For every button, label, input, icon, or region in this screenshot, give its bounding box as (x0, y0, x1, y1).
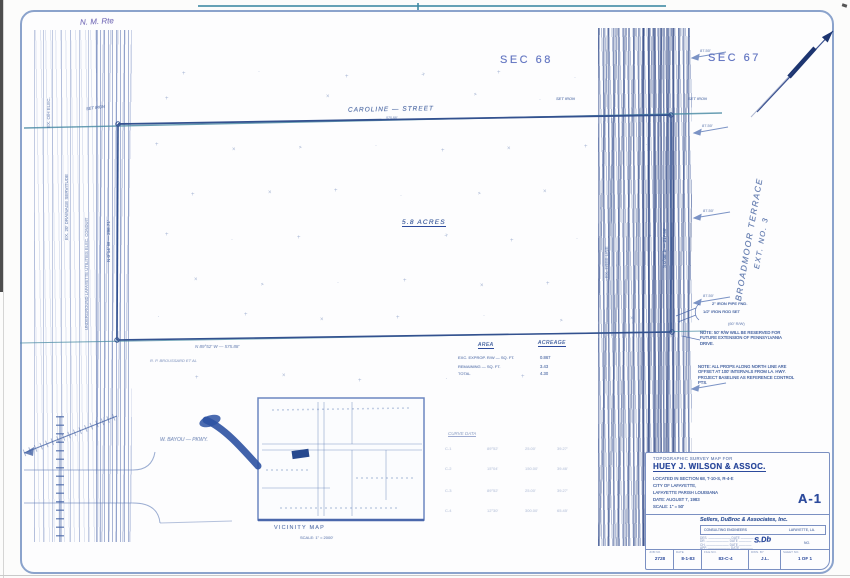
left-band-label-2: UNDERGROUND LAFAYETTE UTILITIES ELEC. CO… (84, 218, 89, 330)
curve-cell: C-4 (445, 508, 451, 513)
section-label-67: SEC 67 (708, 52, 761, 64)
title-divider (646, 514, 829, 515)
note-pennsylvania: NOTE: 50' R/W WILL BE RESERVED FOR FUTUR… (700, 330, 788, 346)
title-field-label: JOB NO. (647, 549, 673, 554)
scan-edge-gray (3, 0, 4, 578)
area-row-label: EXC. EXPROP. R/W — SQ. FT. (458, 355, 514, 360)
right-band-label: EX. TREE LINE (604, 246, 609, 278)
curve-cell: C-3 (445, 488, 451, 493)
area-row-label: REMAINING — SQ. FT. (458, 364, 500, 369)
scan-top-line (198, 5, 666, 7)
curve-cell: 25.00' (525, 446, 536, 451)
title-located: LOCATED IN SECTION 68, T-10-S, R-4-E (653, 476, 734, 481)
adjacent-owner-label: R. P. BROUSSARD ET AL (150, 358, 197, 363)
curve-cell: 89°52' (487, 488, 498, 493)
tick-dim-1: 87.50' (700, 48, 711, 53)
title-date: DATE: AUGUST 7, 1983 (653, 497, 700, 502)
title-field-cell: FILE NO.83-C-4 (701, 549, 749, 569)
tick-dim-3: 87.50' (703, 208, 714, 213)
corner-ne-right-label: SET IRON (688, 96, 707, 101)
firm-sub-box: CONSULTING ENGINEERS LAFAYETTE, LA. (700, 525, 826, 535)
title-block: TOPOGRAPHIC SURVEY MAP FOR HUEY J. WILSO… (645, 452, 830, 570)
site-area-label: 5.8 ACRES (402, 219, 446, 227)
note-rw-tag: (60' R/W) (728, 321, 745, 326)
tick-dim-4: 87.50' (703, 293, 714, 298)
scan-top-notch (417, 3, 419, 10)
approval-signature: S.Db (754, 534, 772, 544)
curve-cell: 150.00' (525, 466, 538, 471)
curve-cell: 65.45' (557, 508, 568, 513)
handwritten-note: N. M. Rte (80, 16, 114, 27)
title-field-label: SHEET NO. (781, 549, 829, 554)
title-field-label: DWN. BY (749, 549, 781, 554)
title-field-value: J.L. (749, 556, 781, 561)
bottom-left-street-name: W. BAYOU — PKWY. (160, 437, 208, 443)
area-table-header-acreage: ACREAGE (538, 340, 566, 347)
east-bearing-label: S 0°08' E — 217.56' (662, 228, 667, 268)
south-bearing-label: N 89°52' W — 575.88' (195, 344, 239, 349)
blueprint-scan: +×+·+×+·+×+·+×+·+×+·+×+·+×+·+×+·+×+·+×+·… (0, 0, 850, 578)
title-field-value: 2728 (647, 556, 673, 561)
title-field-cell: DATE8-1-83 (673, 549, 702, 569)
section-label-68: SEC 68 (500, 54, 553, 66)
curve-cell: 15°04' (487, 466, 498, 471)
title-field-value: 83-C-4 (702, 556, 749, 561)
firm-name: Sellers, DuBroc & Associates, Inc. (700, 517, 788, 523)
top-street-name: CAROLINE — STREET (348, 105, 434, 113)
vicinity-map-scale: SCALE: 1" = 2000' (300, 535, 333, 540)
curve-cell: 89°52' (487, 446, 498, 451)
corner-ne-left-label: SET IRON (556, 96, 575, 101)
title-field-cell: SHEET NO.1 OF 1 (780, 549, 829, 569)
title-field-value: 1 OF 1 (781, 556, 829, 561)
title-field-label: DATE (674, 549, 702, 554)
tick-dim-2: 87.50' (702, 123, 713, 128)
title-field-cell: DWN. BYJ.L. (748, 549, 781, 569)
curve-cell: 39.27' (557, 446, 568, 451)
west-bearing-label: N 0°14' W — 296.71' (106, 220, 111, 262)
curve-cell: 300.00' (525, 508, 538, 513)
curve-cell: C-2 (445, 466, 451, 471)
note-offsets: NOTE: ALL PROPS ALONG NORTH LINE ARE OFF… (698, 364, 798, 386)
left-band-label-1: EX. 20' DRAINAGE SERVITUDE (64, 174, 69, 240)
title-client-name: HUEY J. WILSON & ASSOC. (653, 462, 766, 472)
title-field-label: FILE NO. (702, 549, 749, 554)
curve-cell: 25.00' (525, 488, 536, 493)
curve-cell: 39.27' (557, 488, 568, 493)
left-band-label-3: EX. O/H ELEC. (46, 97, 51, 128)
title-scale: SCALE: 1" = 50' (653, 504, 684, 509)
area-row-value: 3.43 (540, 364, 548, 369)
curve-cell: C-1 (445, 446, 451, 451)
curve-table-title: CURVE DATA (448, 431, 476, 437)
area-row-label: TOTAL (458, 371, 471, 376)
scan-corner-speck (842, 3, 848, 7)
title-field-cell: JOB NO.2728 (647, 549, 673, 569)
area-row-value: 0.867 (540, 355, 550, 360)
firm-sub-right: LAFAYETTE, LA. (789, 528, 815, 532)
area-table-header-area: AREA (478, 342, 494, 349)
firm-sub-left: CONSULTING ENGINEERS (704, 528, 747, 532)
title-heading-small: TOPOGRAPHIC SURVEY MAP FOR (653, 456, 733, 461)
approval-no-label: NO. (804, 541, 810, 545)
area-row-value: 4.30 (540, 371, 548, 376)
title-field-value: 8-1-83 (674, 556, 702, 561)
curve-cell: 39.46' (557, 466, 568, 471)
title-fields-strip: JOB NO.2728DATE8-1-83FILE NO.83-C-4DWN. … (646, 549, 829, 569)
vicinity-map-title: VICINITY MAP (274, 525, 325, 531)
note-rod-set: 1/2" IRON ROD SET (703, 309, 740, 314)
sheet-number: A-1 (798, 491, 822, 506)
top-street-dimension: 575.88' (386, 116, 397, 120)
scan-bottom-line (0, 575, 850, 576)
title-parish: LAFAYETTE PARISH LOUISIANA (653, 490, 718, 495)
note-pipe-found: 2" IRON PIPE FND. (712, 301, 747, 306)
curve-cell: 12°30' (487, 508, 498, 513)
title-city: CITY OF LAFAYETTE, (653, 483, 696, 488)
